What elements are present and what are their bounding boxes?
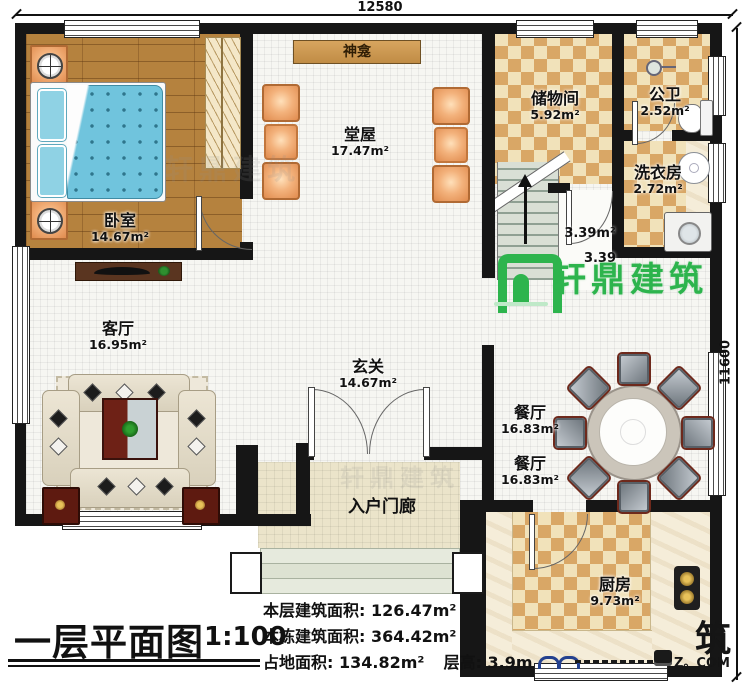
title-underline <box>8 665 260 667</box>
kitchen-sink-bowl <box>538 656 560 669</box>
shrine-shelf: 神龛 <box>293 40 421 64</box>
porch-column <box>230 552 262 594</box>
dining-chair <box>619 354 649 384</box>
wall <box>612 33 624 247</box>
room-label-bath: 公卫 2.52m² <box>618 86 712 117</box>
pillow <box>38 89 66 141</box>
entrance-door-leaf <box>423 387 430 457</box>
shower-hose <box>660 66 676 68</box>
window <box>516 20 594 38</box>
hall-chair <box>432 87 470 125</box>
wall <box>482 33 495 278</box>
hall-tea-table <box>434 127 468 163</box>
plant-icon <box>158 266 170 276</box>
bed <box>30 82 166 202</box>
kitchen-counter-left <box>486 512 513 666</box>
title-underline <box>8 659 260 662</box>
stair-direction-arrow-icon <box>518 174 532 187</box>
door-leaf <box>529 514 535 570</box>
window <box>64 20 200 38</box>
porch-pillar <box>236 445 258 525</box>
burner <box>680 572 694 586</box>
porch-step <box>260 578 460 594</box>
dining-chair <box>683 418 713 448</box>
brand-logo-base <box>494 302 548 306</box>
window <box>708 143 726 203</box>
washing-machine-icon <box>664 212 712 252</box>
dimension-label-right: 11600 <box>719 333 734 393</box>
coffee-table <box>102 398 158 460</box>
tv-cabinet <box>75 262 182 281</box>
shower-icon <box>646 60 662 76</box>
stove-icon <box>674 566 700 610</box>
area-info-line-2: 本栋建筑面积: 364.42m² <box>263 623 456 647</box>
lamp-icon <box>37 53 63 79</box>
nightstand <box>30 45 68 85</box>
wall <box>15 248 253 260</box>
burner <box>680 590 694 604</box>
room-label-foyer: 玄关 14.67m² <box>312 358 424 389</box>
room-label-porch: 入户门廊 <box>322 492 442 517</box>
room-label-living: 客厅 16.95m² <box>58 320 178 351</box>
watermark-ghost: 轩鼎建筑 <box>340 458 460 493</box>
hall-chair <box>262 84 300 122</box>
watermark-ghost: 轩鼎建筑 <box>165 148 301 188</box>
pillow <box>38 145 66 197</box>
dining-chair <box>619 482 649 512</box>
door-leaf <box>196 196 202 251</box>
plant-icon <box>122 421 138 437</box>
dimension-label-top: 12580 <box>330 0 430 15</box>
shrine-label: 神龛 <box>343 44 371 60</box>
tv-icon <box>94 267 150 275</box>
corner-glyph-icon <box>654 650 672 666</box>
plan-title: 一层平面图 <box>14 612 204 666</box>
brand-logo-icon <box>498 248 544 304</box>
entrance-door-leaf <box>308 387 315 457</box>
brand-watermark-text: 轩鼎建筑 <box>552 252 708 301</box>
corner-watermark: 筑 Z。COM <box>560 608 742 678</box>
corner-dashes <box>575 660 653 663</box>
window <box>636 20 698 38</box>
dining-table-center <box>620 419 646 445</box>
stair-area-label: 3.39m² <box>550 226 630 241</box>
room-label-bedroom: 卧室 14.67m² <box>60 212 180 243</box>
window <box>12 246 30 424</box>
room-label-dining-2: 餐厅 16.83m² <box>488 455 572 486</box>
area-info-line-3: 占地面积: 134.82m² 层高: 3.9m <box>263 649 533 673</box>
room-label-laundry: 洗衣房 2.72m² <box>610 164 706 195</box>
room-label-kitchen: 厨房 9.73m² <box>560 576 670 607</box>
area-info-line-1: 本层建筑面积: 126.47m² <box>263 597 456 621</box>
hall-chair <box>432 165 470 203</box>
side-table <box>42 487 80 525</box>
room-label-hall: 堂屋 17.47m² <box>300 126 420 157</box>
window <box>62 511 202 530</box>
sheet-fold <box>67 85 107 197</box>
stair-direction-line <box>524 186 527 244</box>
flower-icon <box>195 500 205 510</box>
wall <box>586 500 712 512</box>
room-label-dining: 餐厅 16.83m² <box>488 404 572 435</box>
corner-site-text: Z。COM <box>674 652 730 671</box>
side-table <box>182 487 220 525</box>
flower-icon <box>55 500 65 510</box>
room-label-storage: 储物间 5.92m² <box>495 90 615 121</box>
dimension-line-right <box>736 28 738 680</box>
porch-column <box>452 552 484 594</box>
washer-door <box>678 222 701 245</box>
floor-plan: 神龛 <box>0 0 750 689</box>
wall <box>486 500 533 512</box>
brand-logo-inner <box>513 274 529 304</box>
